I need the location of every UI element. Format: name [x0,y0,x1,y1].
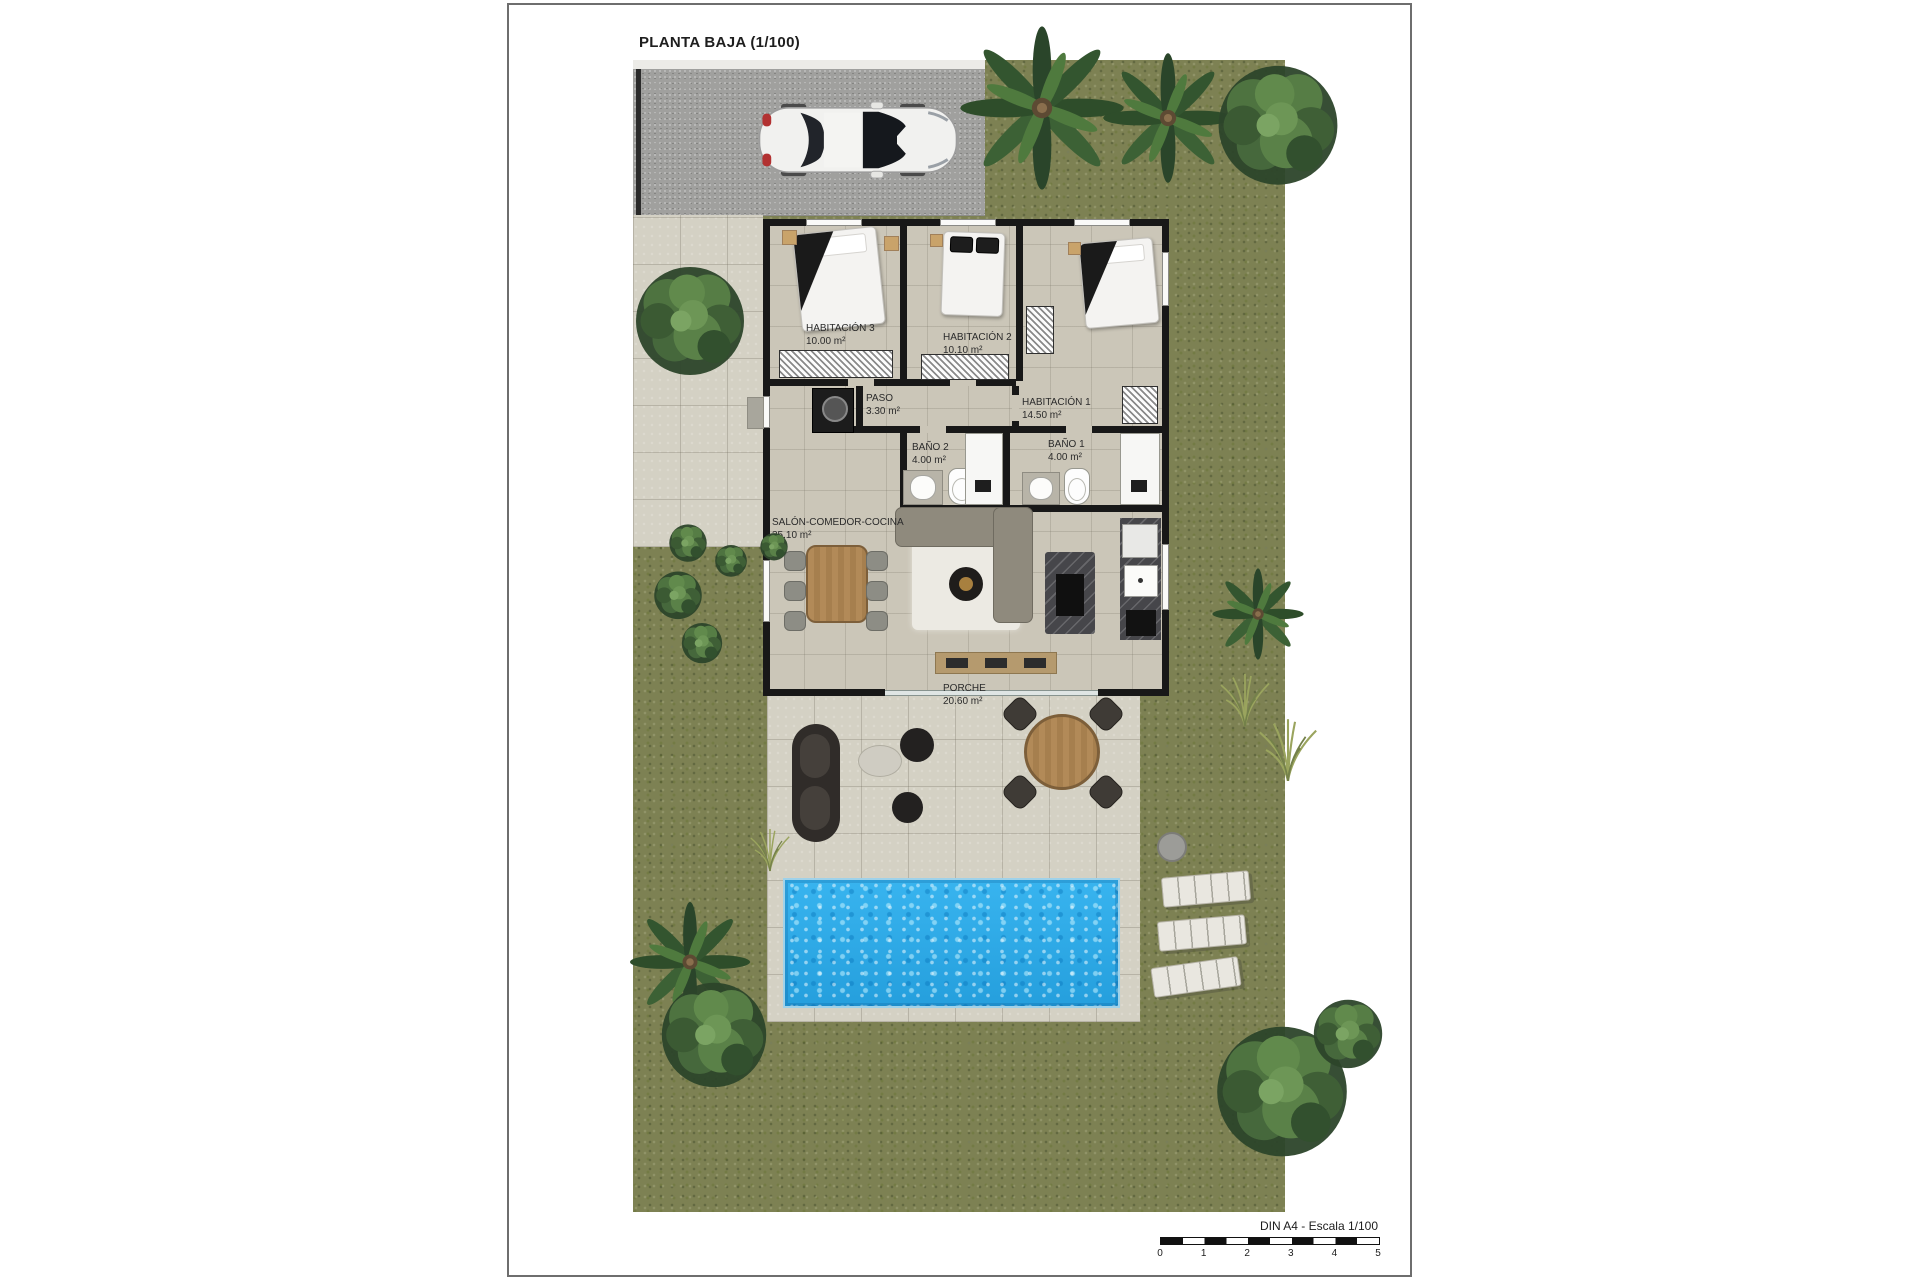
shower [965,433,1003,505]
pillow [976,237,1000,254]
wardrobe [1026,306,1054,354]
wardrobe [921,354,1009,380]
wall [763,689,885,696]
room-label-habitacion3: HABITACIÓN 3 10.00 m² [806,322,875,348]
room-area: 10.10 m² [943,344,1012,357]
room-name: HABITACIÓN 1 [1022,396,1091,409]
scale-tick: 0 [1157,1248,1163,1259]
window [940,219,996,226]
door-opening [950,379,976,386]
console-drawer [946,658,968,668]
grass-tuft [1244,706,1332,794]
shower-drain [975,480,991,492]
door-opening [1012,395,1019,421]
bathroom-sink [903,470,943,505]
floor-plan-canvas: PLANTA BAJA (1/100) [0,0,1920,1280]
room-area: 4.00 m² [912,454,949,467]
fridge [1122,524,1158,558]
wall [1098,689,1169,696]
room-label-bano2: BAÑO 2 4.00 m² [912,441,949,467]
bush [709,538,753,582]
blanket-fold [793,227,885,331]
scale-tick: 5 [1375,1248,1381,1259]
wall [1016,226,1023,381]
sofa-chaise [993,507,1033,623]
scale-bar [1160,1237,1380,1245]
wall [856,386,863,433]
shower-drain [1131,480,1147,492]
room-name: BAÑO 1 [1048,438,1085,451]
room-area: 4.00 m² [1048,451,1085,464]
scale-bar-ticks: 0 1 2 3 4 5 [1160,1248,1378,1262]
bathroom-sink [1022,472,1060,505]
bed [792,226,886,332]
window [1162,252,1169,306]
nightstand [884,236,899,251]
grass-tuft [740,820,800,880]
room-name: PORCHE [943,682,986,695]
wall [900,226,907,381]
tv-console [935,652,1057,674]
shower [1120,433,1160,505]
wall [1003,433,1010,505]
kitchen-sink [1124,565,1158,597]
scale-tick: 2 [1244,1248,1250,1259]
blanket-fold [1079,238,1158,328]
wall [770,379,1016,386]
room-name: BAÑO 2 [912,441,949,454]
porch-pouf [900,728,934,762]
window [1074,219,1130,226]
nightstand [930,234,943,247]
dining-chair [784,581,806,601]
dining-chair [866,581,888,601]
tree [615,243,765,393]
garage-side-wall [636,69,641,215]
room-label-bano1: BAÑO 1 4.00 m² [1048,438,1085,464]
room-area: 20.60 m² [943,695,986,708]
entry-door [763,396,770,428]
tree [642,960,787,1105]
toilet-seat [1068,478,1086,501]
cooktop [1126,610,1156,636]
console-drawer [985,658,1007,668]
window [806,219,862,226]
room-label-paso: PASO 3.30 m² [866,392,900,418]
room-area: 14.50 m² [1022,409,1091,422]
coffee-table-tray [959,577,973,591]
room-label-habitacion2: HABITACIÓN 2 10.10 m² [943,331,1012,357]
room-area: 10.00 m² [806,335,875,348]
tree [1196,40,1361,205]
pillow [950,236,974,253]
entry-mat [747,397,764,429]
window [1162,544,1169,610]
faucet [1138,578,1143,583]
sofa-cushion [800,786,830,830]
island-hob [1056,574,1084,616]
porch-pouf [892,792,923,823]
outdoor-dining-table [1024,714,1100,790]
window [763,560,770,622]
console-drawer [1024,658,1046,668]
room-name: HABITACIÓN 2 [943,331,1012,344]
bed [1078,237,1159,329]
swimming-pool [783,878,1120,1008]
dining-table [806,545,868,623]
sofa-cushion [800,734,830,778]
sink-basin [910,475,936,500]
bed [941,231,1006,317]
dining-chair [784,611,806,631]
bush [755,527,793,565]
garden-side-table [1157,832,1187,862]
room-label-porche: PORCHE 20.60 m² [943,682,986,708]
car-top-view [755,101,961,179]
door-opening [1066,426,1092,433]
palm-tree [1211,567,1306,662]
tree [674,614,730,670]
dining-chair [866,551,888,571]
nightstand [1068,242,1081,255]
scale-tick: 1 [1201,1248,1207,1259]
room-name: HABITACIÓN 3 [806,322,875,335]
sliding-glass-door [885,690,1098,696]
scale-tick: 4 [1332,1248,1338,1259]
boiler [822,396,848,422]
wardrobe [779,350,893,378]
room-name: PASO [866,392,900,405]
room-label-habitacion1: HABITACIÓN 1 14.50 m² [1022,396,1091,422]
nightstand [782,230,797,245]
door-opening [848,379,874,386]
porch-pouf [858,745,902,777]
sink-basin [1029,477,1053,500]
scale-bar-label: DIN A4 - Escala 1/100 [1160,1219,1378,1233]
wardrobe [1122,386,1158,424]
scale-tick: 3 [1288,1248,1294,1259]
dining-chair [866,611,888,631]
toilet [1064,468,1090,505]
door-opening [920,426,946,433]
page-title: PLANTA BAJA (1/100) [639,34,800,51]
room-area: 3.30 m² [866,405,900,418]
tree [1301,985,1396,1080]
